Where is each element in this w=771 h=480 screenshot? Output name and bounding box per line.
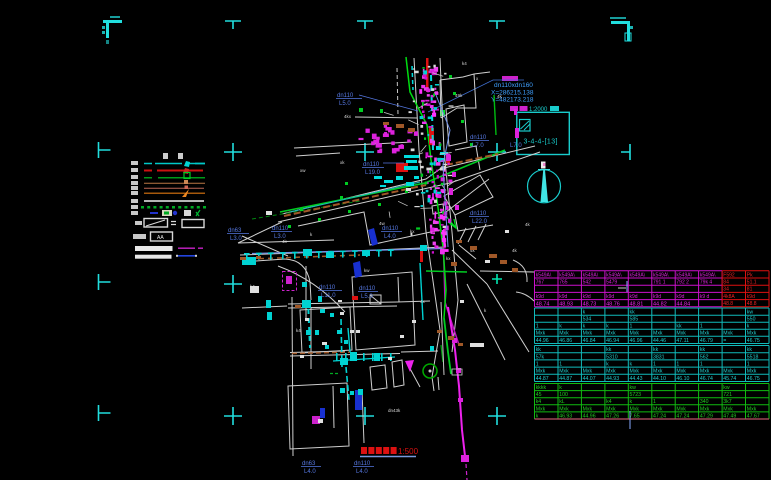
svg-text:44.10: 44.10 <box>653 376 666 382</box>
svg-text:44.93: 44.93 <box>606 376 619 382</box>
svg-text:k: k <box>583 310 586 316</box>
svg-text:79k 4: 79k 4 <box>700 280 712 286</box>
svg-text:Pk: Pk <box>747 272 753 278</box>
svg-text:F592: F592 <box>723 272 735 278</box>
svg-text:4k: 4k <box>282 239 288 244</box>
svg-text:L4.0: L4.0 <box>356 469 368 475</box>
svg-text:767: 767 <box>536 280 545 286</box>
svg-text:542: 542 <box>583 280 592 286</box>
svg-text:3k7: 3k7 <box>723 399 731 405</box>
svg-text:1:500: 1:500 <box>398 447 419 456</box>
svg-text:44.82: 44.82 <box>653 301 667 307</box>
svg-text:k549A\: k549A\ <box>700 272 716 278</box>
svg-text:46.75: 46.75 <box>747 376 760 382</box>
svg-text:Mxk: Mxk <box>747 406 757 412</box>
svg-text:Mxk: Mxk <box>583 406 593 412</box>
svg-text:L5.0: L5.0 <box>361 294 373 300</box>
svg-text:Mxk: Mxk <box>606 406 616 412</box>
svg-text:L4.0: L4.0 <box>384 234 396 240</box>
svg-text:5723: 5723 <box>630 392 642 398</box>
svg-text:k9d: k9d <box>747 294 755 300</box>
svg-text:44.84: 44.84 <box>676 301 690 307</box>
svg-text:48.76: 48.76 <box>606 301 620 307</box>
svg-text:L5.0: L5.0 <box>339 101 351 107</box>
svg-text:1: 1 <box>747 362 750 368</box>
svg-text:46.84: 46.84 <box>583 338 596 344</box>
svg-text:44.87: 44.87 <box>559 376 572 382</box>
svg-text:kk: kk <box>653 347 659 353</box>
svg-text:792 2: 792 2 <box>676 280 689 286</box>
svg-text:kw: kw <box>630 385 637 391</box>
svg-text:46.94: 46.94 <box>606 338 619 344</box>
svg-text:44.87: 44.87 <box>536 376 549 382</box>
svg-text:Mxk: Mxk <box>536 406 546 412</box>
svg-text:k4: k4 <box>296 328 301 333</box>
svg-text:k9d: k9d <box>559 294 567 300</box>
svg-text:k4: k4 <box>606 399 612 405</box>
svg-text:1: 1 <box>536 324 539 330</box>
svg-text:48.93: 48.93 <box>559 301 573 307</box>
svg-text:721: 721 <box>723 392 732 398</box>
svg-text:84: 84 <box>723 280 729 286</box>
svg-text:44.96: 44.96 <box>536 338 549 344</box>
svg-text:dn110xdn160: dn110xdn160 <box>494 82 533 89</box>
svg-text:AA: AA <box>157 235 164 241</box>
svg-text:48.73: 48.73 <box>583 301 597 307</box>
svg-text:k549A\: k549A\ <box>653 272 669 278</box>
svg-text:4k: 4k <box>497 94 503 99</box>
svg-text:k9d: k9d <box>583 294 591 300</box>
svg-text:kx: kx <box>446 256 451 261</box>
svg-text:550: 550 <box>747 317 756 323</box>
svg-text:kw: kw <box>364 268 370 273</box>
svg-text:Mxk: Mxk <box>723 406 733 412</box>
svg-text:Mxk: Mxk <box>653 406 663 412</box>
svg-text:791 1: 791 1 <box>653 280 666 286</box>
svg-text:46.86: 46.86 <box>559 338 572 344</box>
svg-text:Mxk: Mxk <box>536 369 546 375</box>
svg-text:k9d: k9d <box>606 294 614 300</box>
svg-text:47.11: 47.11 <box>676 338 689 344</box>
svg-text:Mxk: Mxk <box>630 406 640 412</box>
svg-text:kL: kL <box>559 399 565 405</box>
svg-text:44.46: 44.46 <box>653 338 666 344</box>
svg-text:49k: 49k <box>455 93 463 98</box>
svg-text:Mxk: Mxk <box>700 406 710 412</box>
svg-text:100: 100 <box>559 392 568 398</box>
svg-text:Mxk: Mxk <box>653 369 663 375</box>
svg-text:Mxk: Mxk <box>700 331 710 337</box>
svg-text:1: 1 <box>653 362 656 368</box>
svg-text:kw: kw <box>747 310 754 316</box>
svg-text:k: k <box>606 324 609 330</box>
svg-text:44.07: 44.07 <box>583 376 596 382</box>
svg-text:Mxk: Mxk <box>676 406 686 412</box>
svg-text:1: 1 <box>536 362 539 368</box>
svg-text:3831: 3831 <box>653 354 665 360</box>
svg-text:Mxk: Mxk <box>747 331 757 337</box>
svg-text:k549A\: k549A\ <box>676 272 692 278</box>
svg-text:46.79: 46.79 <box>700 338 713 344</box>
svg-text:4w: 4w <box>379 221 386 226</box>
svg-text:34: 34 <box>723 287 729 293</box>
svg-text:Mxk: Mxk <box>536 331 546 337</box>
svg-text:k549A\: k549A\ <box>536 272 552 278</box>
svg-text:1: 1 <box>559 362 562 368</box>
svg-text:k4: k4 <box>536 399 542 405</box>
svg-text:kk: kk <box>606 347 612 353</box>
svg-text:kk: kk <box>630 310 636 316</box>
svg-text:Mxk: Mxk <box>630 369 640 375</box>
svg-text:562: 562 <box>700 354 709 360</box>
svg-text:k549A\: k549A\ <box>606 272 622 278</box>
svg-text:k: k <box>747 324 750 330</box>
svg-text:3-4-4-[13]: 3-4-4-[13] <box>524 139 558 146</box>
svg-text:46.10: 46.10 <box>676 376 689 382</box>
svg-text:45: 45 <box>536 392 542 398</box>
svg-text:765: 765 <box>559 280 568 286</box>
svg-text:k: k <box>630 399 633 405</box>
svg-text:48.8: 48.8 <box>723 301 733 307</box>
svg-text:Mxk: Mxk <box>559 369 569 375</box>
svg-text:k: k <box>583 324 586 330</box>
svg-text:48.81: 48.81 <box>630 301 644 307</box>
svg-text:Mxk: Mxk <box>653 331 663 337</box>
svg-text:4x: 4x <box>420 299 426 304</box>
svg-text:1: 1 <box>700 362 703 368</box>
svg-text:kw: kw <box>723 385 730 391</box>
svg-text:kk: kk <box>536 347 542 353</box>
svg-text:1: 1 <box>676 362 679 368</box>
svg-text:1: 1 <box>630 324 633 330</box>
svg-text:Mxk: Mxk <box>606 331 616 337</box>
svg-text:k9d: k9d <box>676 294 684 300</box>
svg-text:L19.0: L19.0 <box>365 170 381 176</box>
svg-text:Mxk: Mxk <box>559 331 569 337</box>
svg-text:k: k <box>559 385 562 391</box>
svg-text:k9d: k9d <box>630 294 638 300</box>
svg-text:5518: 5518 <box>747 354 759 360</box>
svg-text:4k8A: 4k8A <box>723 294 735 300</box>
svg-text:k9d: k9d <box>536 294 544 300</box>
svg-text:k: k <box>630 362 633 368</box>
svg-text:L3.0: L3.0 <box>230 236 242 242</box>
svg-text:dn43k: dn43k <box>388 408 401 413</box>
svg-text:L22.0: L22.0 <box>472 219 488 225</box>
svg-text:k549A\: k549A\ <box>630 272 646 278</box>
svg-text:L7.0: L7.0 <box>510 143 522 149</box>
svg-text:340: 340 <box>700 399 709 405</box>
svg-text:kx: kx <box>410 229 415 234</box>
svg-text:46.75: 46.75 <box>747 338 760 344</box>
svg-text:48.8: 48.8 <box>747 301 757 307</box>
svg-text:Mxk: Mxk <box>676 369 686 375</box>
svg-text:k9 d: k9 d <box>700 294 710 300</box>
svg-text:L7.0: L7.0 <box>472 143 484 149</box>
svg-text:1: 1 <box>700 324 703 330</box>
svg-text:45.74: 45.74 <box>723 376 736 382</box>
svg-text:kk: kk <box>700 347 706 353</box>
svg-text:k: k <box>559 324 562 330</box>
svg-text:534: 534 <box>583 317 592 323</box>
svg-text:51.1: 51.1 <box>747 280 757 286</box>
svg-text:44.43: 44.43 <box>630 376 643 382</box>
svg-text:xk: xk <box>340 160 345 165</box>
svg-text:5310: 5310 <box>606 354 618 360</box>
svg-text:k4: k4 <box>462 61 467 66</box>
svg-text:L11.0: L11.0 <box>321 293 336 299</box>
svg-text:46.74: 46.74 <box>700 376 713 382</box>
svg-text:48.74: 48.74 <box>536 301 550 307</box>
svg-text:L4.0: L4.0 <box>304 469 316 475</box>
svg-text:Mxk: Mxk <box>583 369 593 375</box>
svg-text:xw: xw <box>300 168 306 173</box>
svg-text:kk: kk <box>676 324 682 330</box>
svg-text:585: 585 <box>630 317 639 323</box>
svg-text:kk: kk <box>747 347 753 353</box>
svg-text:Mxk: Mxk <box>630 331 640 337</box>
svg-text:k549A\: k549A\ <box>559 272 575 278</box>
svg-text:81: 81 <box>747 287 753 293</box>
svg-text:Mxk: Mxk <box>723 369 733 375</box>
svg-text:4k: 4k <box>525 222 531 227</box>
svg-text:4kx: 4kx <box>344 114 352 119</box>
svg-text:46.96: 46.96 <box>630 338 643 344</box>
svg-text:5479: 5479 <box>606 280 617 286</box>
svg-text:Mxk: Mxk <box>676 331 686 337</box>
svg-text:Mxk: Mxk <box>723 331 733 337</box>
svg-text:Mxk: Mxk <box>559 406 569 412</box>
svg-text:Mxk: Mxk <box>747 369 757 375</box>
svg-text:k: k <box>606 362 609 368</box>
svg-text:1: 1 <box>653 399 656 405</box>
svg-text:Mxk: Mxk <box>700 369 710 375</box>
svg-text:Mxk: Mxk <box>583 331 593 337</box>
svg-text:=: = <box>723 338 726 344</box>
svg-text:Mxk: Mxk <box>606 369 616 375</box>
svg-text:57k: 57k <box>536 354 545 360</box>
svg-text:kkkk: kkkk <box>536 385 547 391</box>
svg-text:k9d: k9d <box>653 294 661 300</box>
svg-text:k549A\: k549A\ <box>583 272 599 278</box>
svg-text:4k: 4k <box>512 248 518 253</box>
